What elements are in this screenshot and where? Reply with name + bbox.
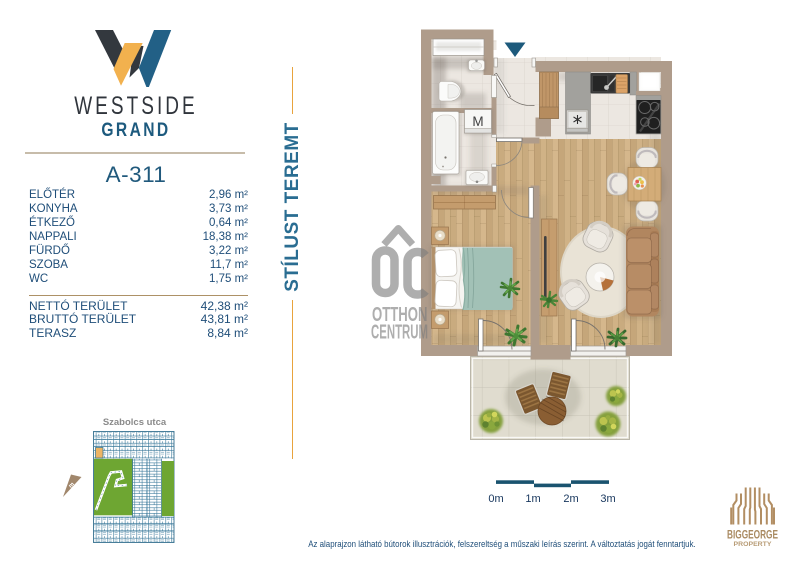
- svg-text:M: M: [472, 114, 483, 129]
- svg-text:CENTRUM: CENTRUM: [371, 322, 428, 344]
- svg-text:3m: 3m: [600, 493, 615, 505]
- svg-text:BIGGEORGE: BIGGEORGE: [727, 528, 778, 542]
- svg-text:2m: 2m: [563, 493, 578, 505]
- svg-text:0m: 0m: [488, 493, 503, 505]
- svg-text:PROPERTY: PROPERTY: [734, 541, 773, 548]
- svg-text:1m: 1m: [525, 493, 540, 505]
